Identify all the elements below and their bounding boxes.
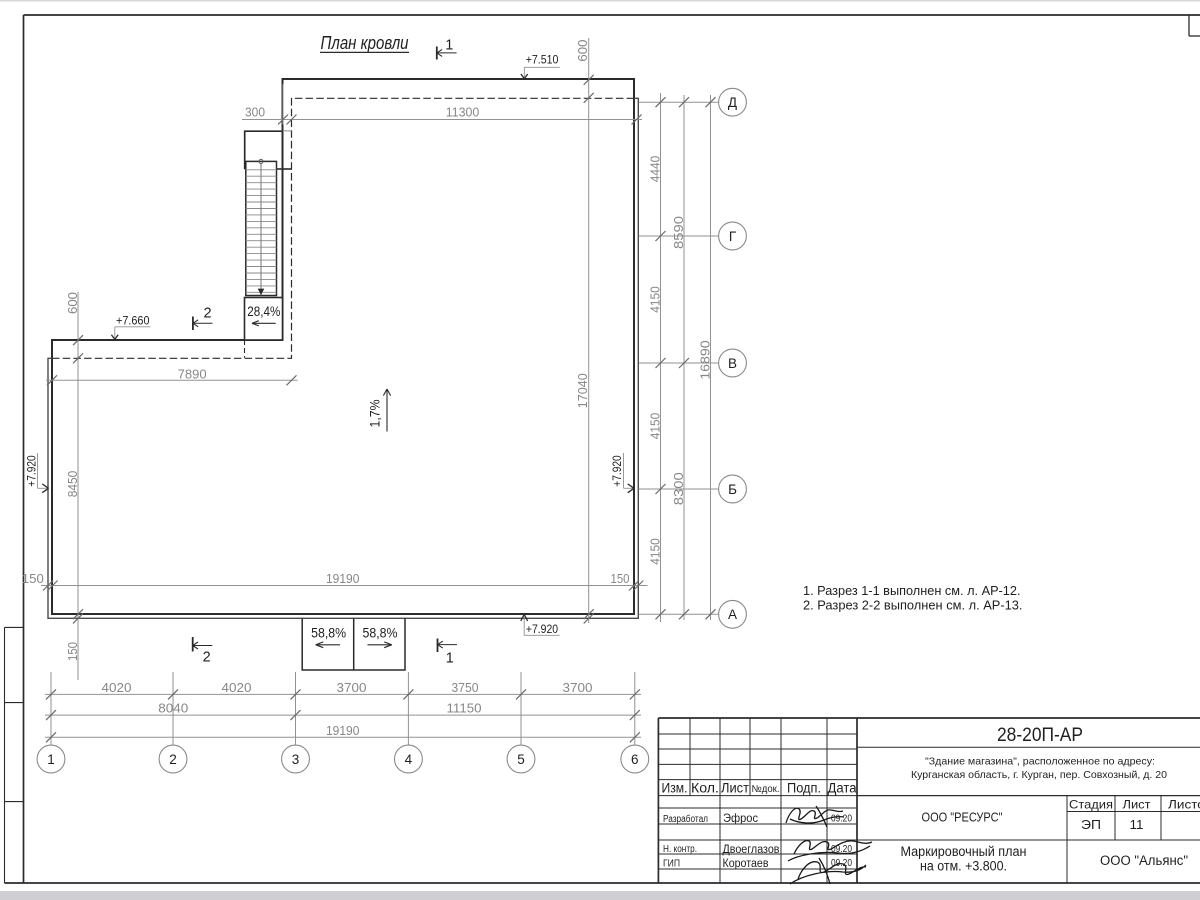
svg-text:4: 4 xyxy=(405,752,413,767)
svg-text:58,8%: 58,8% xyxy=(363,626,398,641)
svg-text:3700: 3700 xyxy=(563,681,593,695)
svg-text:1: 1 xyxy=(446,650,454,666)
svg-text:Лист: Лист xyxy=(1123,798,1152,812)
svg-text:11150: 11150 xyxy=(447,702,482,716)
svg-text:План кровли: План кровли xyxy=(321,33,409,53)
svg-text:Кол.: Кол. xyxy=(691,781,719,796)
svg-text:4440: 4440 xyxy=(649,156,663,183)
svg-text:+7.920: +7.920 xyxy=(610,455,624,487)
svg-text:3750: 3750 xyxy=(452,681,479,695)
svg-text:2: 2 xyxy=(169,752,177,767)
svg-text:+7.920: +7.920 xyxy=(24,455,38,487)
svg-text:300: 300 xyxy=(245,105,265,119)
svg-text:ООО "РЕСУРС": ООО "РЕСУРС" xyxy=(922,810,1003,824)
svg-text:А: А xyxy=(728,607,737,622)
svg-text:150: 150 xyxy=(22,572,44,586)
svg-text:3700: 3700 xyxy=(337,681,367,695)
svg-text:ЭП: ЭП xyxy=(1081,817,1101,832)
svg-text:11: 11 xyxy=(1130,817,1144,832)
svg-text:Дата: Дата xyxy=(828,781,857,796)
svg-text:28,4%: 28,4% xyxy=(247,304,280,319)
svg-text:1: 1 xyxy=(47,752,55,767)
svg-text:Разработал: Разработал xyxy=(663,813,708,825)
svg-text:600: 600 xyxy=(66,292,80,314)
svg-text:Б: Б xyxy=(728,482,737,497)
svg-text:28-20П-АР: 28-20П-АР xyxy=(997,725,1083,746)
svg-text:№док.: №док. xyxy=(752,784,780,795)
svg-text:Стадия: Стадия xyxy=(1069,798,1113,812)
svg-text:1,7%: 1,7% xyxy=(367,400,383,428)
svg-text:58,8%: 58,8% xyxy=(311,626,346,641)
svg-text:2: 2 xyxy=(203,649,211,665)
svg-text:600: 600 xyxy=(576,40,590,62)
svg-text:19190: 19190 xyxy=(326,572,360,586)
svg-text:5: 5 xyxy=(517,752,525,767)
svg-text:Д: Д xyxy=(728,95,737,110)
svg-text:+7.920: +7.920 xyxy=(526,622,558,636)
svg-text:11300: 11300 xyxy=(446,105,480,119)
svg-text:+7.660: +7.660 xyxy=(116,314,150,328)
svg-text:Эфрос: Эфрос xyxy=(723,811,758,825)
svg-text:Маркировочный план: Маркировочный план xyxy=(901,844,1027,859)
svg-text:В: В xyxy=(728,356,737,371)
svg-text:4020: 4020 xyxy=(102,681,132,695)
svg-text:Курганская область, г. Курган,: Курганская область, г. Курган, пер. Совх… xyxy=(911,769,1167,781)
svg-text:Г: Г xyxy=(729,229,737,244)
svg-text:Лист: Лист xyxy=(721,781,749,796)
svg-text:8450: 8450 xyxy=(66,471,80,498)
svg-text:4150: 4150 xyxy=(649,538,663,565)
svg-text:"Здание магазина", расположенн: "Здание магазина", расположенное по адре… xyxy=(925,756,1155,768)
svg-text:ООО "Альянс": ООО "Альянс" xyxy=(1100,853,1188,868)
svg-text:09.20: 09.20 xyxy=(831,813,852,824)
svg-text:19190: 19190 xyxy=(326,724,360,738)
svg-text:8300: 8300 xyxy=(672,472,686,505)
svg-text:16890: 16890 xyxy=(699,340,713,380)
svg-text:17040: 17040 xyxy=(576,373,590,408)
svg-text:4150: 4150 xyxy=(649,413,663,440)
svg-text:2. Разрез 2-2 выполнен см. л.: 2. Разрез 2-2 выполнен см. л. АР-13. xyxy=(803,599,1023,613)
svg-text:ГИП: ГИП xyxy=(663,858,680,869)
svg-text:8590: 8590 xyxy=(672,216,686,249)
svg-text:Коротаев: Коротаев xyxy=(723,858,769,870)
svg-text:+7.510: +7.510 xyxy=(526,53,559,67)
svg-text:8040: 8040 xyxy=(158,702,188,716)
svg-text:150: 150 xyxy=(611,572,630,586)
svg-text:Н. контр.: Н. контр. xyxy=(663,844,697,855)
svg-text:4020: 4020 xyxy=(222,681,252,695)
svg-text:7890: 7890 xyxy=(178,367,207,381)
svg-text:150: 150 xyxy=(66,642,80,661)
svg-text:Листов: Листов xyxy=(1168,798,1200,812)
svg-text:1: 1 xyxy=(445,38,453,54)
svg-text:1. Разрез 1-1 выполнен см. л.: 1. Разрез 1-1 выполнен см. л. АР-12. xyxy=(803,584,1021,598)
svg-text:Изм.: Изм. xyxy=(662,781,688,796)
svg-text:6: 6 xyxy=(631,752,639,767)
svg-text:на отм. +3.800.: на отм. +3.800. xyxy=(920,858,1007,873)
svg-text:Подп.: Подп. xyxy=(787,781,821,796)
svg-text:Двоеглазов: Двоеглазов xyxy=(723,844,780,856)
svg-text:4150: 4150 xyxy=(649,286,663,313)
svg-text:2: 2 xyxy=(203,306,211,322)
svg-text:3: 3 xyxy=(292,752,300,767)
